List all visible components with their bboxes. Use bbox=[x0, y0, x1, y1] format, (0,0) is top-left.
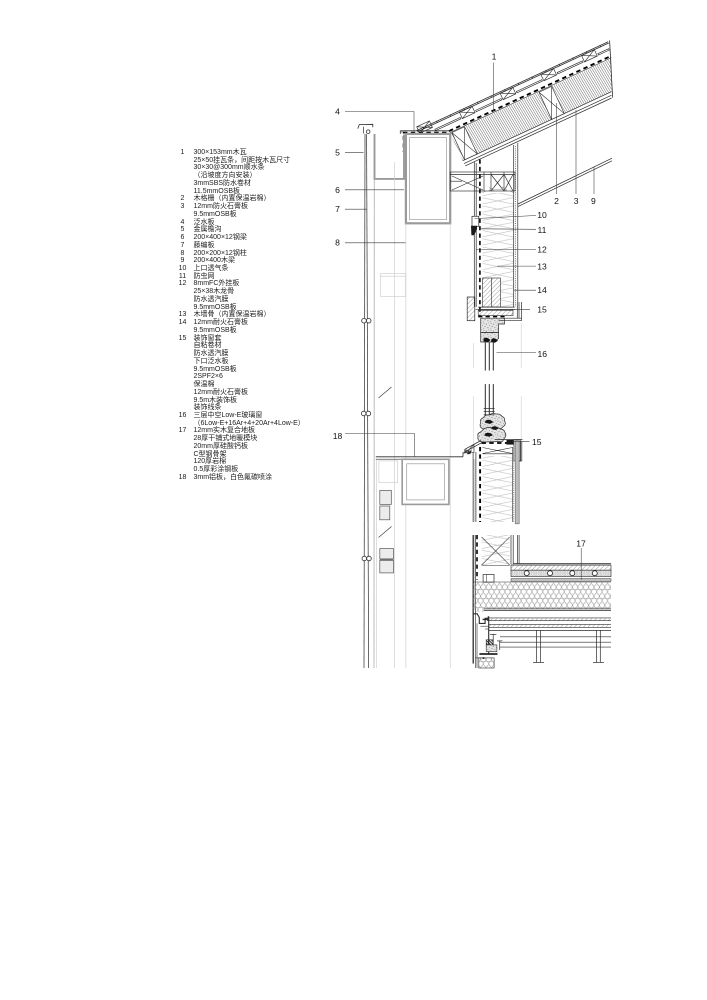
svg-text:15: 15 bbox=[537, 304, 547, 314]
svg-text:13: 13 bbox=[537, 262, 547, 272]
svg-text:6: 6 bbox=[335, 185, 340, 195]
svg-text:14: 14 bbox=[537, 285, 547, 295]
svg-text:3: 3 bbox=[574, 196, 579, 206]
svg-text:11: 11 bbox=[538, 225, 547, 235]
svg-text:8: 8 bbox=[335, 238, 340, 248]
svg-text:5: 5 bbox=[335, 147, 340, 157]
svg-text:2: 2 bbox=[554, 196, 559, 206]
svg-text:16: 16 bbox=[538, 349, 548, 359]
svg-text:17: 17 bbox=[576, 539, 586, 549]
svg-text:12: 12 bbox=[537, 244, 547, 254]
svg-text:4: 4 bbox=[335, 107, 340, 117]
svg-text:7: 7 bbox=[335, 204, 340, 214]
svg-text:10: 10 bbox=[537, 210, 547, 220]
svg-text:18: 18 bbox=[333, 431, 343, 441]
svg-text:1: 1 bbox=[492, 52, 497, 62]
svg-text:9: 9 bbox=[591, 196, 596, 206]
svg-text:15: 15 bbox=[532, 437, 542, 447]
